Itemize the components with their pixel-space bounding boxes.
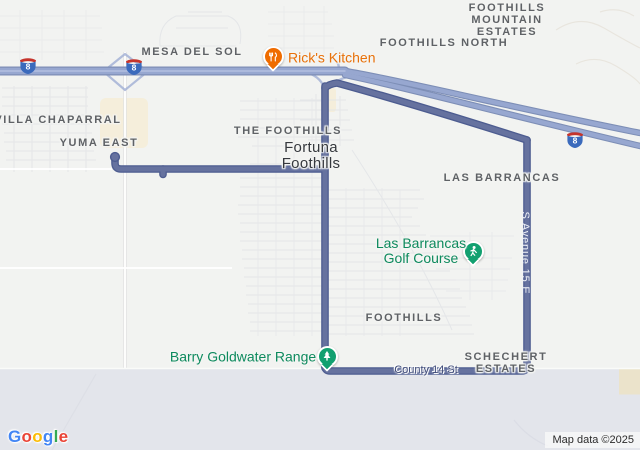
map-data-attribution: Map data ©2025: [545, 432, 640, 448]
svg-text:8: 8: [572, 135, 577, 145]
map-layers: [0, 0, 640, 450]
logo-letter: G: [8, 427, 22, 447]
golfer-icon: [467, 245, 480, 258]
ricks-kitchen-marker[interactable]: [263, 46, 284, 67]
interstate-8-shield: 8: [125, 57, 143, 76]
logo-letter: g: [43, 427, 54, 447]
barry-goldwater-range-marker[interactable]: [317, 346, 338, 367]
tree-icon: [321, 350, 334, 363]
terrain-patch: [619, 369, 640, 395]
svg-text:8: 8: [131, 62, 136, 72]
map-canvas[interactable]: VILLA CHAPARRAL MESA DEL SOL YUMA EAST T…: [0, 0, 640, 450]
restaurant-utensils-icon: [267, 50, 280, 63]
logo-letter: e: [59, 427, 69, 447]
interstate-8-shield: 8: [19, 56, 37, 75]
svg-text:8: 8: [25, 61, 30, 71]
interstate-8-shield: 8: [566, 130, 584, 149]
logo-letter: o: [32, 427, 43, 447]
logo-letter: o: [22, 427, 33, 447]
google-logo[interactable]: Google: [8, 427, 68, 447]
route-endpoint: [111, 153, 120, 162]
golf-course-marker[interactable]: [463, 241, 484, 262]
